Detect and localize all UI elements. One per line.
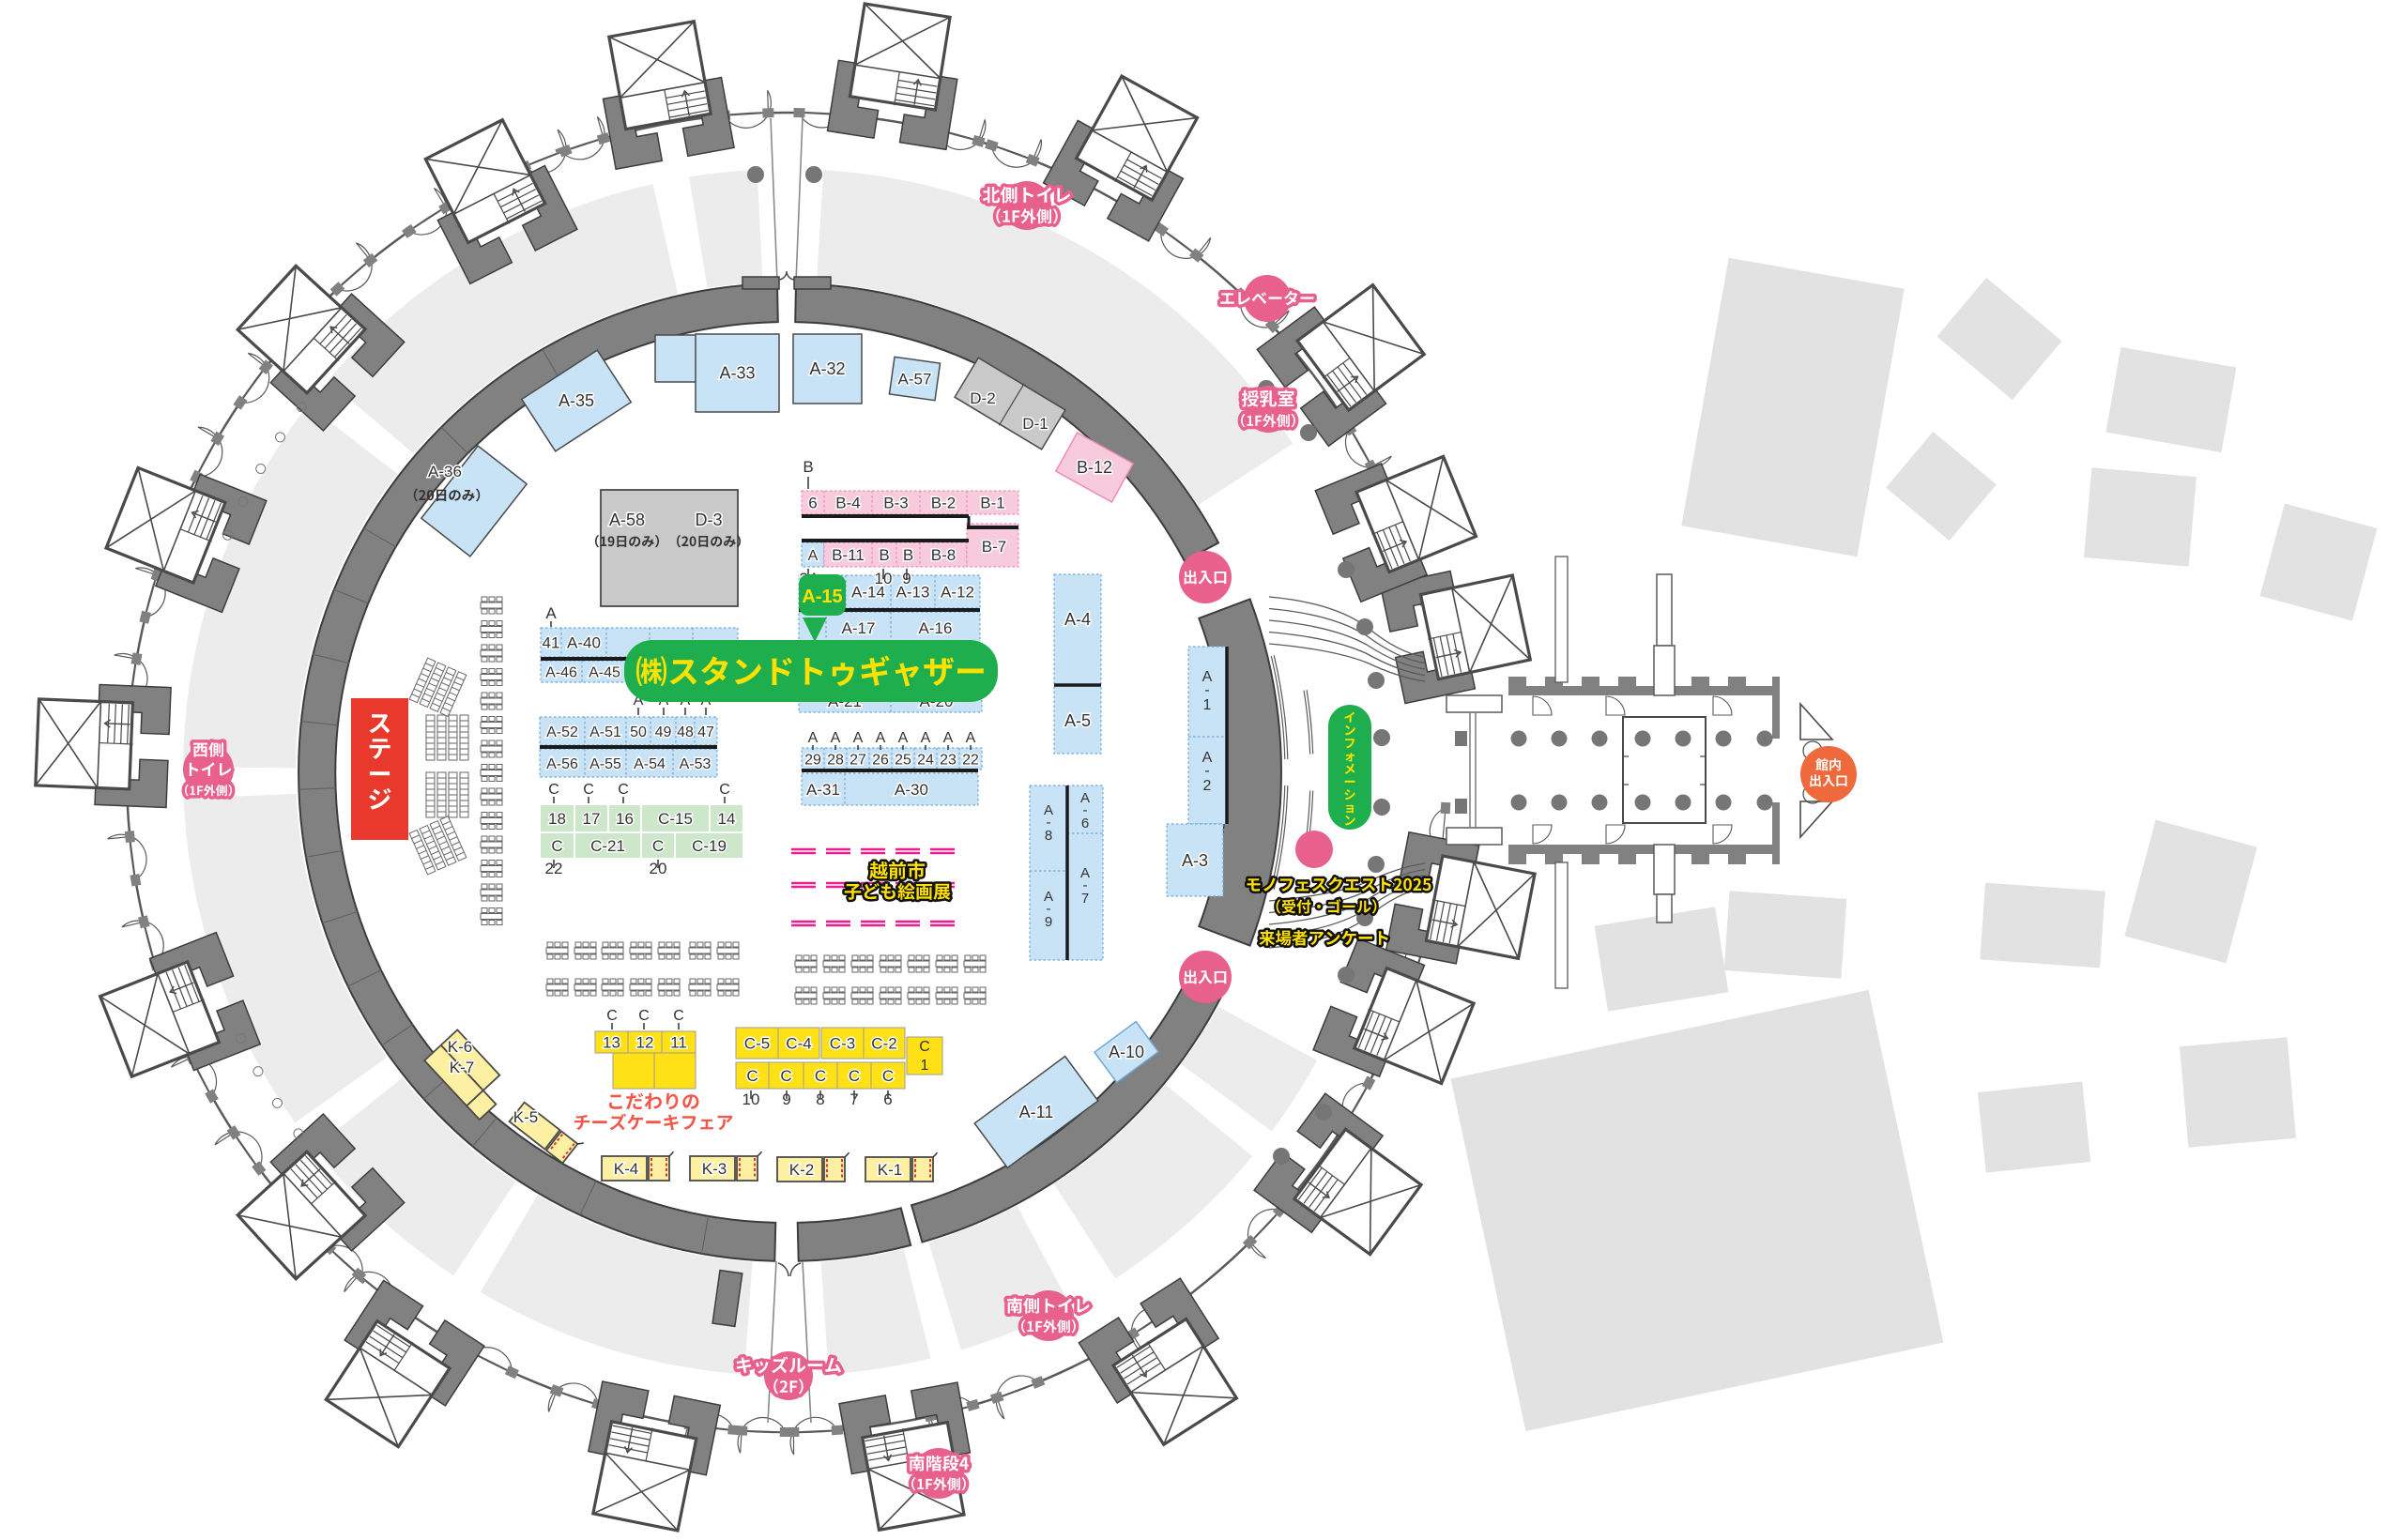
svg-text:A: A bbox=[808, 548, 819, 564]
svg-text:6: 6 bbox=[1081, 816, 1089, 831]
svg-text:A: A bbox=[808, 730, 819, 746]
svg-text:A: A bbox=[545, 604, 557, 622]
svg-text:B-7: B-7 bbox=[982, 538, 1006, 556]
svg-text:41: 41 bbox=[543, 634, 560, 652]
svg-text:C: C bbox=[815, 1067, 826, 1085]
svg-text:A: A bbox=[876, 730, 886, 746]
svg-text:K-5: K-5 bbox=[513, 1108, 538, 1126]
svg-text:50: 50 bbox=[630, 724, 647, 740]
svg-text:24: 24 bbox=[917, 753, 934, 769]
svg-text:K-4: K-4 bbox=[614, 1160, 638, 1178]
svg-text:A-56: A-56 bbox=[546, 756, 578, 772]
svg-text:A-35: A-35 bbox=[559, 391, 594, 410]
svg-text:A: A bbox=[898, 730, 909, 746]
svg-text:47: 47 bbox=[697, 724, 714, 740]
svg-text:25: 25 bbox=[895, 753, 911, 769]
svg-text:D-3: D-3 bbox=[695, 511, 722, 529]
svg-text:C: C bbox=[882, 1067, 894, 1085]
svg-text:K-1: K-1 bbox=[878, 1161, 902, 1179]
svg-text:27: 27 bbox=[849, 753, 866, 769]
svg-text:C: C bbox=[638, 1008, 650, 1024]
svg-text:A-10: A-10 bbox=[1109, 1043, 1144, 1061]
svg-text:B: B bbox=[903, 546, 913, 564]
svg-text:C: C bbox=[673, 1008, 684, 1024]
svg-text:A-15: A-15 bbox=[802, 587, 842, 607]
svg-text:A-58: A-58 bbox=[609, 511, 645, 529]
svg-text:C: C bbox=[618, 782, 629, 798]
svg-text:A-17: A-17 bbox=[842, 619, 876, 637]
svg-text:A: A bbox=[921, 730, 931, 746]
svg-text:C: C bbox=[719, 782, 730, 798]
svg-text:C: C bbox=[780, 1067, 791, 1085]
svg-text:D-2: D-2 bbox=[970, 389, 995, 407]
svg-text:A-54: A-54 bbox=[634, 756, 666, 772]
svg-text:C-15: C-15 bbox=[658, 810, 693, 828]
svg-text:6: 6 bbox=[808, 495, 817, 512]
svg-text:A-13: A-13 bbox=[896, 584, 930, 602]
svg-text:C-5: C-5 bbox=[744, 1035, 770, 1053]
svg-text:A-52: A-52 bbox=[546, 724, 578, 740]
svg-text:B-12: B-12 bbox=[1077, 458, 1112, 477]
svg-text:A-11: A-11 bbox=[1019, 1103, 1054, 1121]
svg-text:A-40: A-40 bbox=[567, 634, 601, 652]
svg-text:A-16: A-16 bbox=[919, 619, 953, 637]
svg-text:A-51: A-51 bbox=[589, 724, 621, 740]
svg-text:29: 29 bbox=[804, 753, 821, 769]
svg-text:A-33: A-33 bbox=[719, 364, 755, 383]
svg-text:C: C bbox=[746, 1067, 758, 1085]
svg-text:16: 16 bbox=[616, 810, 634, 828]
svg-text:A: A bbox=[831, 730, 841, 746]
svg-text:2: 2 bbox=[1203, 778, 1212, 794]
svg-text:28: 28 bbox=[827, 753, 844, 769]
svg-text:K-2: K-2 bbox=[789, 1161, 814, 1179]
svg-text:B-3: B-3 bbox=[883, 495, 908, 512]
svg-text:A: A bbox=[853, 730, 864, 746]
svg-text:17: 17 bbox=[583, 810, 601, 828]
svg-text:C-21: C-21 bbox=[590, 837, 625, 855]
svg-text:B-2: B-2 bbox=[931, 495, 956, 512]
svg-text:A-55: A-55 bbox=[589, 756, 621, 772]
svg-text:C: C bbox=[548, 782, 559, 798]
svg-text:B-8: B-8 bbox=[931, 546, 956, 564]
svg-text:C: C bbox=[849, 1067, 860, 1085]
svg-text:A: A bbox=[943, 730, 954, 746]
svg-text:C: C bbox=[583, 782, 594, 798]
svg-text:49: 49 bbox=[655, 724, 672, 740]
svg-text:C-2: C-2 bbox=[871, 1035, 896, 1053]
svg-text:K-7: K-7 bbox=[450, 1059, 474, 1076]
svg-text:22: 22 bbox=[962, 753, 979, 769]
svg-text:A-12: A-12 bbox=[941, 584, 974, 602]
svg-text:48: 48 bbox=[677, 724, 694, 740]
svg-text:K-6: K-6 bbox=[448, 1038, 472, 1056]
svg-text:18: 18 bbox=[548, 810, 566, 828]
svg-text:C-19: C-19 bbox=[692, 837, 727, 855]
svg-text:A-32: A-32 bbox=[809, 359, 845, 378]
svg-text:B: B bbox=[803, 458, 813, 476]
svg-text:B: B bbox=[879, 546, 889, 564]
svg-text:12: 12 bbox=[636, 1034, 654, 1052]
svg-text:1: 1 bbox=[1203, 697, 1212, 713]
svg-text:C-4: C-4 bbox=[786, 1035, 811, 1053]
svg-text:13: 13 bbox=[603, 1034, 620, 1052]
svg-text:A-57: A-57 bbox=[898, 371, 932, 389]
svg-text:D-1: D-1 bbox=[1022, 415, 1048, 433]
svg-text:-: - bbox=[1204, 682, 1209, 698]
svg-text:-: - bbox=[1204, 763, 1209, 779]
svg-text:A-30: A-30 bbox=[895, 781, 928, 799]
svg-text:B-4: B-4 bbox=[835, 495, 860, 512]
svg-text:11: 11 bbox=[670, 1034, 687, 1052]
svg-text:B-11: B-11 bbox=[832, 546, 865, 564]
svg-text:9: 9 bbox=[1045, 914, 1052, 930]
svg-text:C: C bbox=[652, 837, 664, 855]
svg-text:K-3: K-3 bbox=[702, 1160, 727, 1178]
svg-text:C: C bbox=[606, 1008, 618, 1024]
svg-text:C: C bbox=[551, 837, 562, 855]
svg-text:A-5: A-5 bbox=[1064, 711, 1091, 730]
svg-text:7: 7 bbox=[1081, 891, 1089, 907]
svg-text:8: 8 bbox=[1045, 828, 1052, 844]
svg-text:A-4: A-4 bbox=[1064, 610, 1091, 629]
svg-text:A-53: A-53 bbox=[680, 756, 712, 772]
svg-text:A-36: A-36 bbox=[428, 463, 462, 480]
svg-text:C: C bbox=[919, 1039, 930, 1055]
svg-text:26: 26 bbox=[872, 753, 889, 769]
svg-text:14: 14 bbox=[718, 810, 736, 828]
svg-text:A-3: A-3 bbox=[1182, 851, 1208, 870]
svg-text:B-1: B-1 bbox=[980, 495, 1004, 512]
svg-text:A-46: A-46 bbox=[545, 665, 577, 681]
svg-text:1: 1 bbox=[921, 1058, 929, 1074]
svg-text:C-3: C-3 bbox=[830, 1035, 855, 1053]
svg-text:A: A bbox=[966, 730, 976, 746]
svg-text:A-31: A-31 bbox=[806, 781, 840, 799]
svg-text:23: 23 bbox=[940, 753, 957, 769]
svg-text:A-45: A-45 bbox=[589, 665, 620, 681]
